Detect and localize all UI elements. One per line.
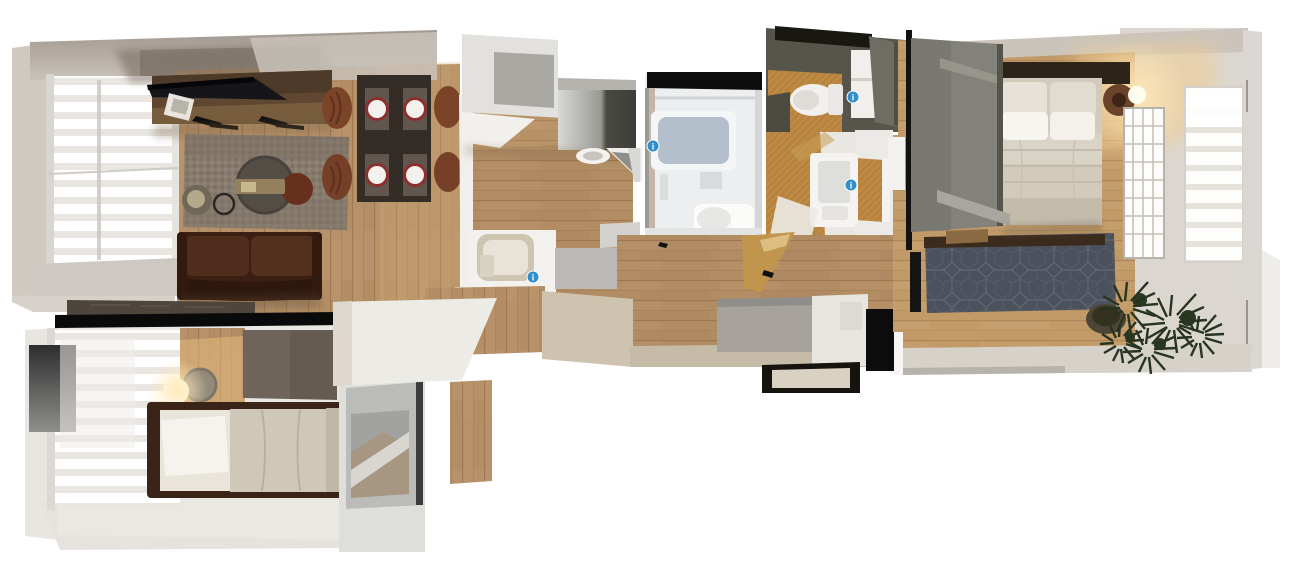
- svg-text:i: i: [850, 181, 853, 191]
- svg-text:i: i: [852, 93, 855, 103]
- svg-text:i: i: [652, 142, 655, 152]
- svg-text:i: i: [532, 273, 535, 283]
